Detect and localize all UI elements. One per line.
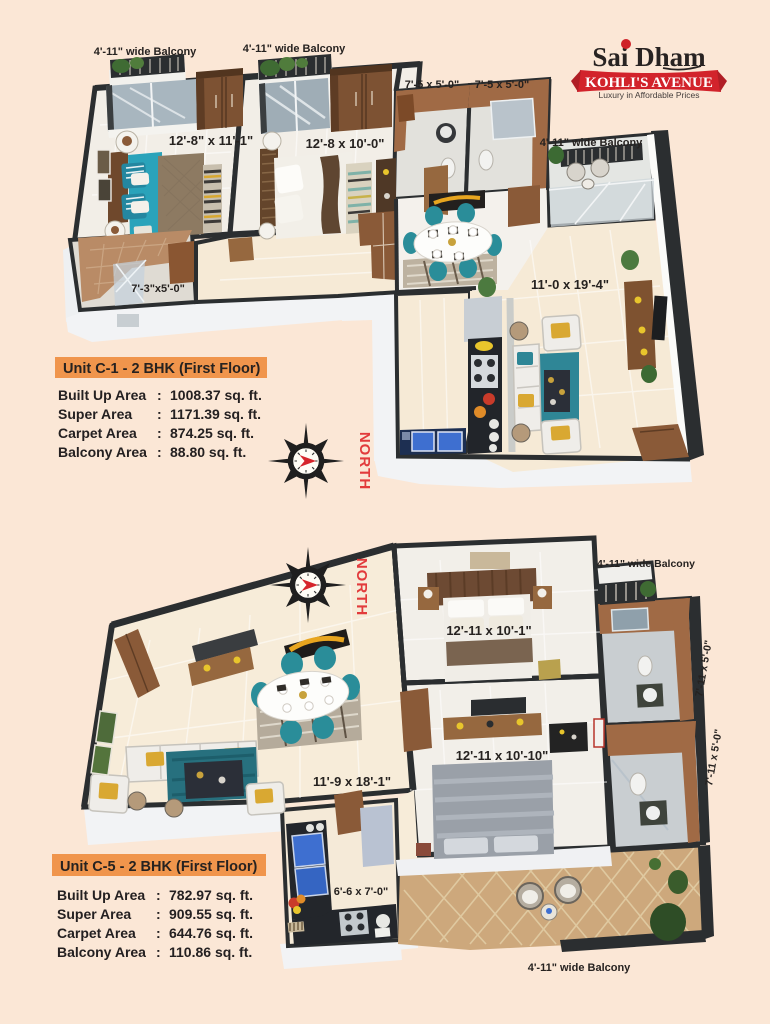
svg-text:Unit C-5 - 2 BHK (First Floor): Unit C-5 - 2 BHK (First Floor) xyxy=(60,859,258,875)
svg-text::: : xyxy=(156,944,161,960)
svg-text:12'-8 x 10'-0": 12'-8 x 10'-0" xyxy=(306,136,385,151)
svg-text:Unit C-1 - 2 BHK (First Floor): Unit C-1 - 2 BHK (First Floor) xyxy=(63,361,261,377)
svg-text:NORTH: NORTH xyxy=(353,558,370,616)
svg-text:Balcony Area: Balcony Area xyxy=(58,444,147,460)
svg-text:11'-9 x 18'-1": 11'-9 x 18'-1" xyxy=(313,774,391,789)
svg-text:4'-11" wide Balcony: 4'-11" wide Balcony xyxy=(597,558,695,570)
svg-text:Carpet Area: Carpet Area xyxy=(58,425,137,441)
svg-text:88.80 sq. ft.: 88.80 sq. ft. xyxy=(170,444,246,460)
svg-text::: : xyxy=(157,387,162,403)
svg-text:7'-3"x5'-0": 7'-3"x5'-0" xyxy=(131,283,185,295)
svg-text:4'-11" wide Balcony: 4'-11" wide Balcony xyxy=(540,137,643,149)
svg-text::: : xyxy=(156,906,161,922)
svg-text::: : xyxy=(156,925,161,941)
svg-text:Balcony Area: Balcony Area xyxy=(57,944,146,960)
svg-text:Sai Dham: Sai Dham xyxy=(592,42,706,72)
svg-text::: : xyxy=(157,406,162,422)
svg-text:4'-11" wide Balcony: 4'-11" wide Balcony xyxy=(528,962,631,974)
svg-text:NORTH: NORTH xyxy=(356,432,373,490)
svg-text:12'-11 x 10'-1": 12'-11 x 10'-1" xyxy=(446,623,531,638)
svg-text:12'-8" x 11'-1": 12'-8" x 11'-1" xyxy=(169,133,253,148)
svg-text:KOHLI'S AVENUE: KOHLI'S AVENUE xyxy=(585,75,713,91)
svg-text:909.55 sq. ft.: 909.55 sq. ft. xyxy=(169,906,253,922)
svg-text::: : xyxy=(156,887,161,903)
svg-text:Luxury in Affordable Prices: Luxury in Affordable Prices xyxy=(599,90,700,100)
svg-text:12'-11 x 10'-10": 12'-11 x 10'-10" xyxy=(456,748,549,763)
svg-text:4'-11" wide Balcony: 4'-11" wide Balcony xyxy=(243,43,346,55)
svg-text::: : xyxy=(157,444,162,460)
svg-text:1171.39 sq. ft.: 1171.39 sq. ft. xyxy=(170,406,261,422)
svg-text::: : xyxy=(157,425,162,441)
svg-text:7'-5 x 5'-0": 7'-5 x 5'-0" xyxy=(475,79,529,91)
svg-text:Super Area: Super Area xyxy=(58,406,132,422)
svg-text:110.86 sq. ft.: 110.86 sq. ft. xyxy=(169,944,252,960)
svg-text:1008.37 sq. ft.: 1008.37 sq. ft. xyxy=(170,387,262,403)
svg-text:Built Up Area: Built Up Area xyxy=(58,387,146,403)
svg-text:874.25 sq. ft.: 874.25 sq. ft. xyxy=(170,425,254,441)
svg-text:4'-11" wide Balcony: 4'-11" wide Balcony xyxy=(94,46,197,58)
svg-text:644.76 sq. ft.: 644.76 sq. ft. xyxy=(169,925,253,941)
svg-text:7'-5 x 5'-0": 7'-5 x 5'-0" xyxy=(405,79,459,91)
svg-text:Carpet Area: Carpet Area xyxy=(57,925,136,941)
svg-text:11'-0 x 19'-4": 11'-0 x 19'-4" xyxy=(531,277,609,292)
svg-text:Built Up Area: Built Up Area xyxy=(57,887,145,903)
svg-text:782.97 sq. ft.: 782.97 sq. ft. xyxy=(169,887,253,903)
svg-text:Super Area: Super Area xyxy=(57,906,131,922)
svg-text:6'-6 x 7'-0": 6'-6 x 7'-0" xyxy=(334,886,388,898)
